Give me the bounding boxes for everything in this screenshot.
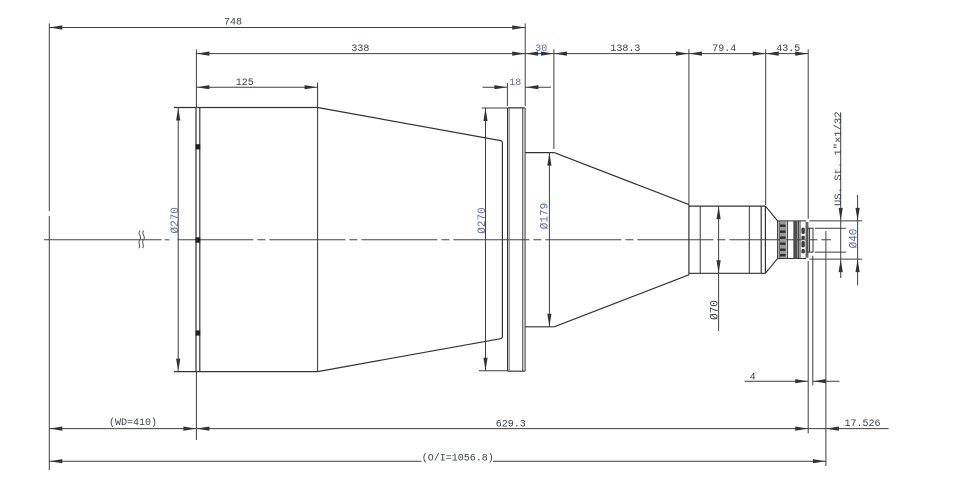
svg-text:748: 748 xyxy=(224,18,242,29)
svg-text:338: 338 xyxy=(351,44,369,55)
svg-text:629.3: 629.3 xyxy=(496,420,526,431)
svg-text:(WD=410): (WD=410) xyxy=(109,417,157,429)
svg-text:(O/I=1056.8): (O/I=1056.8) xyxy=(422,452,494,464)
svg-text:17.526: 17.526 xyxy=(844,419,880,430)
svg-text:138.3: 138.3 xyxy=(610,44,640,55)
svg-text:18: 18 xyxy=(509,78,521,89)
svg-text:Ø179: Ø179 xyxy=(539,203,551,229)
svg-text:Ø270: Ø270 xyxy=(170,207,182,233)
svg-text:4: 4 xyxy=(750,372,756,383)
svg-text:Ø270: Ø270 xyxy=(477,207,489,233)
svg-text:Ø70: Ø70 xyxy=(710,300,722,320)
svg-text:79.4: 79.4 xyxy=(712,44,736,55)
svg-text:US. St. 1"×1/32: US. St. 1"×1/32 xyxy=(833,111,845,206)
svg-text:43.5: 43.5 xyxy=(776,44,800,55)
svg-text:125: 125 xyxy=(236,78,254,89)
svg-text:30: 30 xyxy=(535,44,547,55)
svg-text:Ø40: Ø40 xyxy=(849,229,861,249)
